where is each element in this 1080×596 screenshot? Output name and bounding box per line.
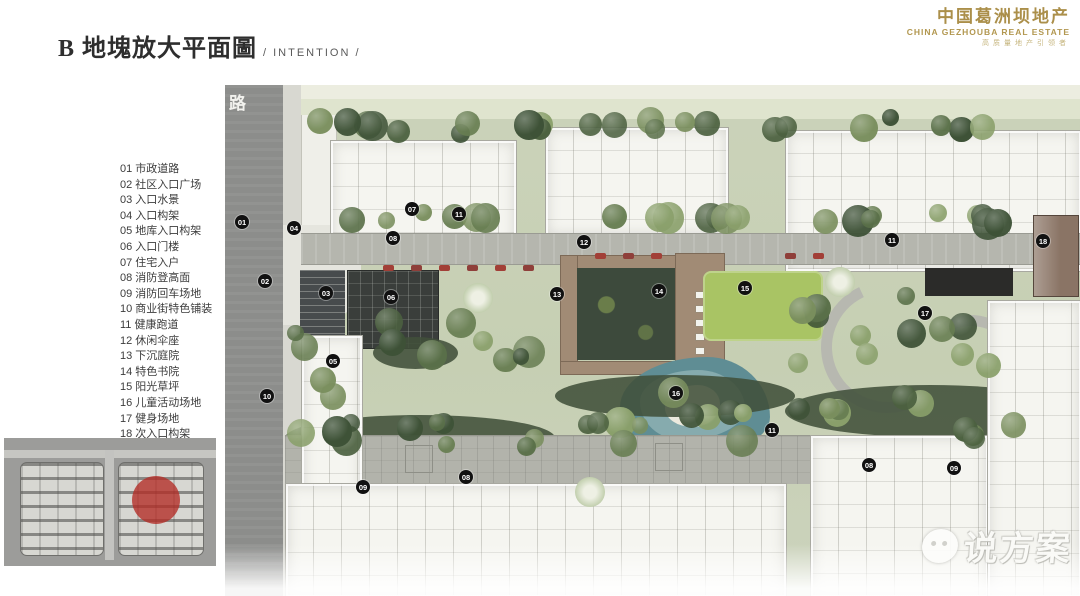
legend-item: 16 儿童活动场地 [120, 396, 212, 412]
logo-slogan: 高质量地产引领者 [907, 40, 1070, 49]
plan-marker-14: 14 [652, 284, 666, 298]
legend-item: 11 健康跑道 [120, 318, 212, 334]
plan-marker-10: 10 [260, 389, 274, 403]
tree-icon [357, 111, 387, 141]
plan-marker-06: 06 [384, 290, 398, 304]
plan-marker-16: 16 [669, 386, 683, 400]
tree-icon [725, 205, 750, 230]
parked-car-icon [813, 253, 824, 259]
tree-icon [310, 367, 336, 393]
tree-icon [951, 343, 974, 366]
plan-marker-02: 02 [258, 274, 272, 288]
tree-icon [322, 416, 352, 446]
tree-icon [1001, 412, 1027, 438]
plan-marker-15: 15 [738, 281, 752, 295]
road-name-label: 路 [229, 89, 246, 114]
tree-icon [726, 425, 758, 457]
parked-car-icon [651, 253, 662, 259]
legend-item: 08 消防登高面 [120, 271, 212, 287]
page-title: B 地塊放大平面圖/ INTENTION / [58, 28, 361, 63]
tree-icon [455, 111, 480, 136]
title-chinese: B 地塊放大平面圖 [58, 36, 257, 62]
plan-marker-12: 12 [577, 235, 591, 249]
watermark: 说方案 [920, 521, 1073, 570]
tree-icon [788, 398, 810, 420]
plan-marker-11: 11 [885, 233, 899, 247]
umbrella-seat-icon [695, 347, 705, 355]
tree-icon [675, 112, 695, 132]
site-plan: 路 [225, 85, 1080, 596]
tree-icon [397, 415, 423, 441]
entrance-water-feature [300, 270, 345, 335]
tree-icon [417, 340, 447, 370]
tree-icon [897, 287, 915, 305]
tree-icon [287, 325, 303, 341]
tree-icon [850, 114, 877, 141]
plan-marker-18: 18 [1036, 234, 1050, 248]
plan-marker-09: 09 [947, 461, 961, 475]
secondary-entrance-canopy [925, 268, 1013, 296]
plan-marker-07: 07 [405, 202, 419, 216]
legend-item: 14 特色书院 [120, 365, 212, 381]
tree-icon [471, 203, 501, 233]
parked-car-icon [467, 265, 478, 271]
legend-item: 05 地库入口构架 [120, 224, 212, 240]
plan-marker-08: 08 [459, 470, 473, 484]
slide-page: B 地塊放大平面圖/ INTENTION / 中国葛洲坝地产 CHINA GEZ… [0, 0, 1080, 596]
location-minimap [4, 438, 216, 566]
title-english: / INTENTION / [263, 47, 361, 59]
tree-icon [861, 210, 879, 228]
fire-turnaround-mark [655, 443, 683, 471]
secondary-entrance-structure [1033, 215, 1079, 297]
legend-item: 13 下沉庭院 [120, 349, 212, 365]
parked-car-icon [785, 253, 796, 259]
watermark-text: 说方案 [962, 521, 1073, 570]
tree-icon [882, 109, 899, 126]
tree-icon [473, 331, 493, 351]
plan-marker-03: 03 [319, 286, 333, 300]
tree-icon [775, 116, 797, 138]
logo-name-chinese: 中国葛洲坝地产 [907, 6, 1070, 27]
fire-turnaround-mark [405, 445, 433, 473]
tree-icon [892, 385, 917, 410]
minimap-road-vertical [105, 450, 114, 560]
legend-item: 01 市政道路 [120, 162, 212, 178]
logo-name-english: CHINA GEZHOUBA REAL ESTATE [907, 27, 1070, 38]
tree-icon [379, 329, 406, 356]
parked-car-icon [595, 253, 606, 259]
tree-icon [819, 398, 840, 419]
tree-icon [387, 120, 410, 143]
tree-icon [694, 111, 719, 136]
courtyard-frame-left [560, 255, 578, 375]
legend-item: 15 阳光草坪 [120, 380, 212, 396]
tree-icon [789, 297, 815, 323]
tree-icon [446, 308, 476, 338]
plan-marker-09: 09 [356, 480, 370, 494]
legend-item: 02 社区入口广场 [120, 178, 212, 194]
tree-icon [679, 403, 704, 428]
watermark-face-icon [921, 529, 959, 563]
plan-legend: 01 市政道路02 社区入口广场03 入口水景04 入口构架05 地库入口构架0… [120, 162, 212, 443]
legend-item: 04 入口构架 [120, 209, 212, 225]
legend-item: 12 休闲伞座 [120, 334, 212, 350]
parked-car-icon [383, 265, 394, 271]
sunken-courtyard [577, 268, 675, 360]
tree-icon [734, 404, 752, 422]
tree-icon [602, 204, 627, 229]
tree-icon [378, 212, 395, 229]
plan-marker-11: 11 [452, 207, 466, 221]
company-logo: 中国葛洲坝地产 CHINA GEZHOUBA REAL ESTATE 高质量地产… [907, 6, 1070, 49]
minimap-highlight-circle [132, 476, 180, 524]
legend-item: 07 住宅入户 [120, 256, 212, 272]
parked-car-icon [523, 265, 534, 271]
tree-icon [976, 353, 1001, 378]
tree-icon [788, 353, 809, 374]
legend-item: 09 消防回车场地 [120, 287, 212, 303]
plan-marker-08: 08 [862, 458, 876, 472]
white-blossom-tree-icon [575, 477, 605, 507]
legend-item: 17 健身场地 [120, 412, 212, 428]
white-blossom-tree-icon [463, 283, 493, 313]
plan-marker-11: 11 [765, 423, 779, 437]
tree-icon [339, 207, 364, 232]
plan-marker-05: 05 [326, 354, 340, 368]
tree-icon [963, 427, 985, 449]
plan-marker-08: 08 [386, 231, 400, 245]
tree-icon [602, 112, 627, 137]
tree-icon [513, 348, 529, 364]
plan-marker-04: 04 [287, 221, 301, 235]
parked-car-icon [439, 265, 450, 271]
parked-car-icon [623, 253, 634, 259]
tree-icon [897, 319, 926, 348]
legend-item: 10 商业街特色铺装 [120, 302, 212, 318]
legend-item: 06 入口门楼 [120, 240, 212, 256]
tree-icon [970, 114, 995, 139]
parked-car-icon [411, 265, 422, 271]
plan-marker-13: 13 [550, 287, 564, 301]
plan-top-walk [225, 85, 1080, 99]
tree-icon [579, 113, 602, 136]
plan-marker-17: 17 [918, 306, 932, 320]
tree-icon [645, 119, 665, 139]
white-blossom-tree-icon [825, 267, 855, 297]
tree-icon [429, 414, 446, 431]
plan-marker-01: 01 [235, 215, 249, 229]
tree-icon [610, 430, 637, 457]
minimap-plot-a [20, 462, 104, 556]
tree-icon [514, 110, 543, 139]
legend-item: 03 入口水景 [120, 193, 212, 209]
parked-car-icon [495, 265, 506, 271]
municipal-road [225, 85, 283, 596]
